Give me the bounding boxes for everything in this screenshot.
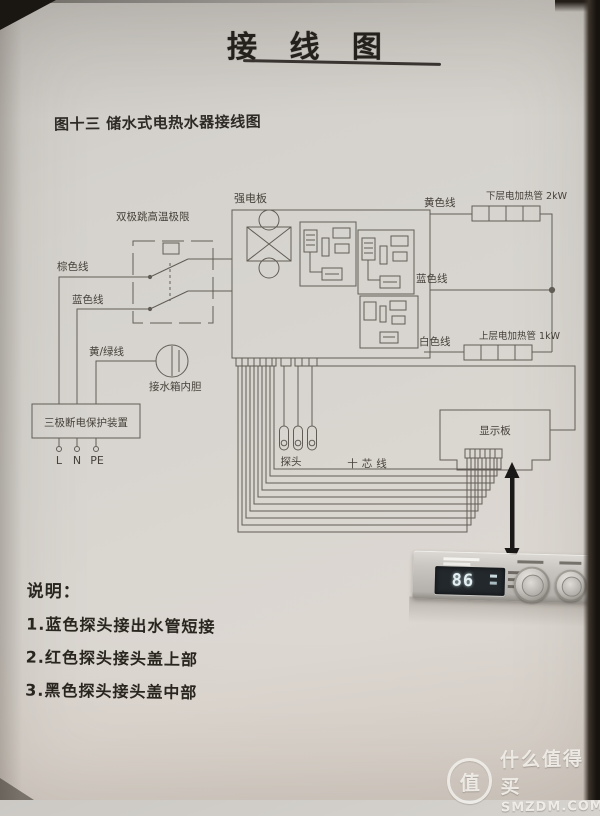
label-terminal-l: L (56, 454, 63, 467)
temperature-knob (513, 566, 550, 603)
label-display-board: 显示板 (479, 424, 511, 437)
panel-display-value: 86 (435, 570, 492, 591)
photo-edge-top (40, 0, 460, 3)
relay-block-1 (300, 222, 356, 286)
label-lower-heater: 下层电加热管 2kW (486, 190, 568, 202)
control-panel-photo: 86 (412, 551, 600, 604)
label-upper-heater: 上层电加热管 1kW (479, 330, 561, 342)
ten-core-ribbon (238, 366, 501, 532)
label-terminal-pe: PE (90, 454, 104, 467)
panel-display-tick (490, 575, 497, 578)
notes-section: 说明： 1.蓝色探头接出水管短接 2.红色探头接头盖上部 3.黑色探头接头盖中部 (25, 577, 216, 704)
knob1-caption (517, 560, 543, 564)
display-board-box (440, 410, 550, 470)
thermostat-limit-switch (133, 241, 213, 323)
smzdm-watermark: 值 什么值得买 SMZDM.COM (446, 744, 600, 816)
label-yellow-wire: 黄色线 (424, 196, 456, 209)
notes-heading: 说明： (27, 577, 217, 605)
tank-ground-symbol (156, 345, 188, 377)
panel-brand-subtext (443, 562, 470, 565)
watermark-site: SMZDM.COM (501, 799, 600, 816)
label-thermostat: 双极跳高温极限 (116, 210, 190, 223)
photo-edge-right (583, 0, 600, 800)
panel-display-tick2 (490, 582, 497, 585)
smzdm-badge-icon: 值 (447, 758, 493, 805)
label-probes: 探头 (281, 455, 302, 468)
temperature-knob-cap (521, 574, 544, 597)
label-tank-liner: 接水箱内胆 (149, 380, 202, 393)
note-item-2: 2.红色探头接头盖上部 (26, 644, 216, 671)
note-item-3: 3.黑色探头接头盖中部 (25, 677, 215, 704)
relay-block-3 (360, 296, 418, 348)
label-blue-wire-right: 蓝色线 (416, 272, 448, 285)
photo-edge-left (0, 0, 22, 800)
label-yellow-green-wire: 黄/绿线 (89, 345, 125, 358)
panel-display: 86 (435, 566, 506, 596)
knob2-caption (559, 561, 581, 565)
label-terminal-n: N (73, 454, 81, 467)
label-protector: 三极断电保护装置 (44, 416, 128, 429)
label-ten-core: 十芯线 (347, 457, 391, 470)
label-brown-wire: 棕色线 (57, 260, 89, 273)
label-white-wire: 白色线 (419, 335, 451, 348)
relay-block-2 (358, 230, 414, 294)
supply-wires (59, 259, 232, 404)
display-feed-line (316, 366, 575, 430)
probe-wires (280, 366, 317, 450)
panel-brand-text (443, 557, 479, 561)
board-connectors (236, 358, 317, 366)
note-item-1: 1.蓝色探头接出水管短接 (26, 611, 216, 638)
power-knob-cap (562, 576, 582, 596)
label-blue-wire-left: 蓝色线 (72, 293, 104, 306)
double-arrow (505, 462, 520, 564)
label-power-board: 强电板 (234, 191, 267, 205)
